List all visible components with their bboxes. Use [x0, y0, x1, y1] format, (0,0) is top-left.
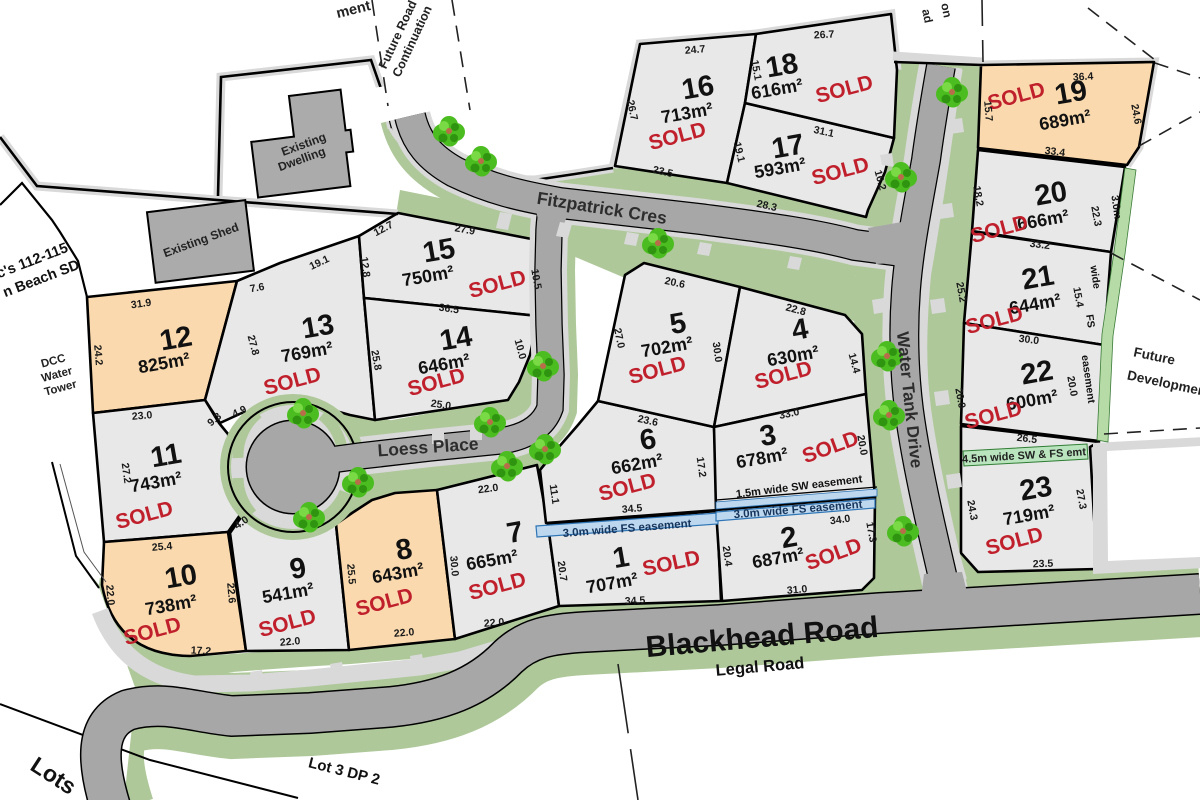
- svg-text:33.4: 33.4: [1044, 145, 1066, 159]
- svg-text:23.0: 23.0: [131, 409, 153, 423]
- svg-text:22.0: 22.0: [483, 616, 505, 630]
- svg-text:26.5: 26.5: [1016, 432, 1038, 446]
- svg-text:24.7: 24.7: [684, 43, 706, 57]
- svg-text:15.7: 15.7: [981, 100, 995, 122]
- svg-text:22.0: 22.0: [477, 482, 499, 496]
- svg-text:30.0: 30.0: [1018, 333, 1040, 347]
- svg-text:17.2: 17.2: [190, 644, 211, 657]
- svg-text:22.6: 22.6: [224, 582, 238, 604]
- svg-text:ad: ad: [919, 8, 936, 25]
- svg-text:22.0: 22.0: [103, 584, 117, 606]
- svg-text:30.0: 30.0: [447, 555, 461, 577]
- svg-text:FS: FS: [1083, 314, 1097, 329]
- svg-text:7.6: 7.6: [249, 281, 266, 295]
- svg-text:on: on: [938, 2, 955, 19]
- svg-text:34.5: 34.5: [625, 594, 646, 607]
- svg-text:22.0: 22.0: [279, 635, 301, 649]
- svg-text:31.0: 31.0: [786, 583, 808, 597]
- svg-text:36.4: 36.4: [1073, 70, 1094, 83]
- svg-text:24.2: 24.2: [91, 344, 105, 366]
- svg-text:25.4: 25.4: [151, 540, 173, 554]
- svg-text:33.2: 33.2: [1029, 238, 1051, 252]
- svg-text:23.5: 23.5: [1033, 558, 1054, 571]
- svg-text:34.5: 34.5: [621, 502, 643, 516]
- svg-text:26.7: 26.7: [814, 28, 835, 41]
- svg-text:25.5: 25.5: [344, 563, 358, 585]
- svg-text:22.0: 22.0: [393, 626, 415, 640]
